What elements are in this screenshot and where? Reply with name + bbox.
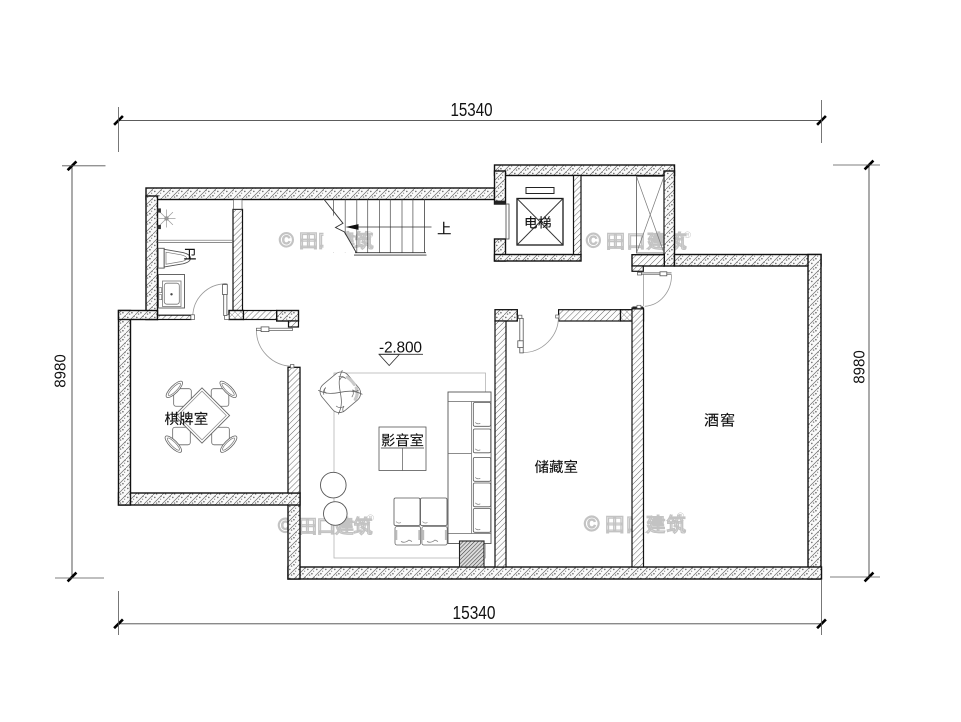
- svg-text:15340: 15340: [451, 99, 493, 120]
- svg-text:©: ©: [584, 513, 600, 536]
- svg-text:®: ®: [367, 513, 374, 524]
- svg-text:8980: 8980: [53, 354, 70, 388]
- svg-text:15340: 15340: [453, 602, 496, 623]
- svg-text:©: ©: [586, 231, 601, 253]
- svg-text:©: ©: [279, 230, 294, 252]
- svg-text:®: ®: [684, 230, 691, 241]
- svg-text:®: ®: [366, 230, 373, 241]
- svg-text:®: ®: [677, 511, 684, 522]
- svg-text:8980: 8980: [852, 350, 869, 384]
